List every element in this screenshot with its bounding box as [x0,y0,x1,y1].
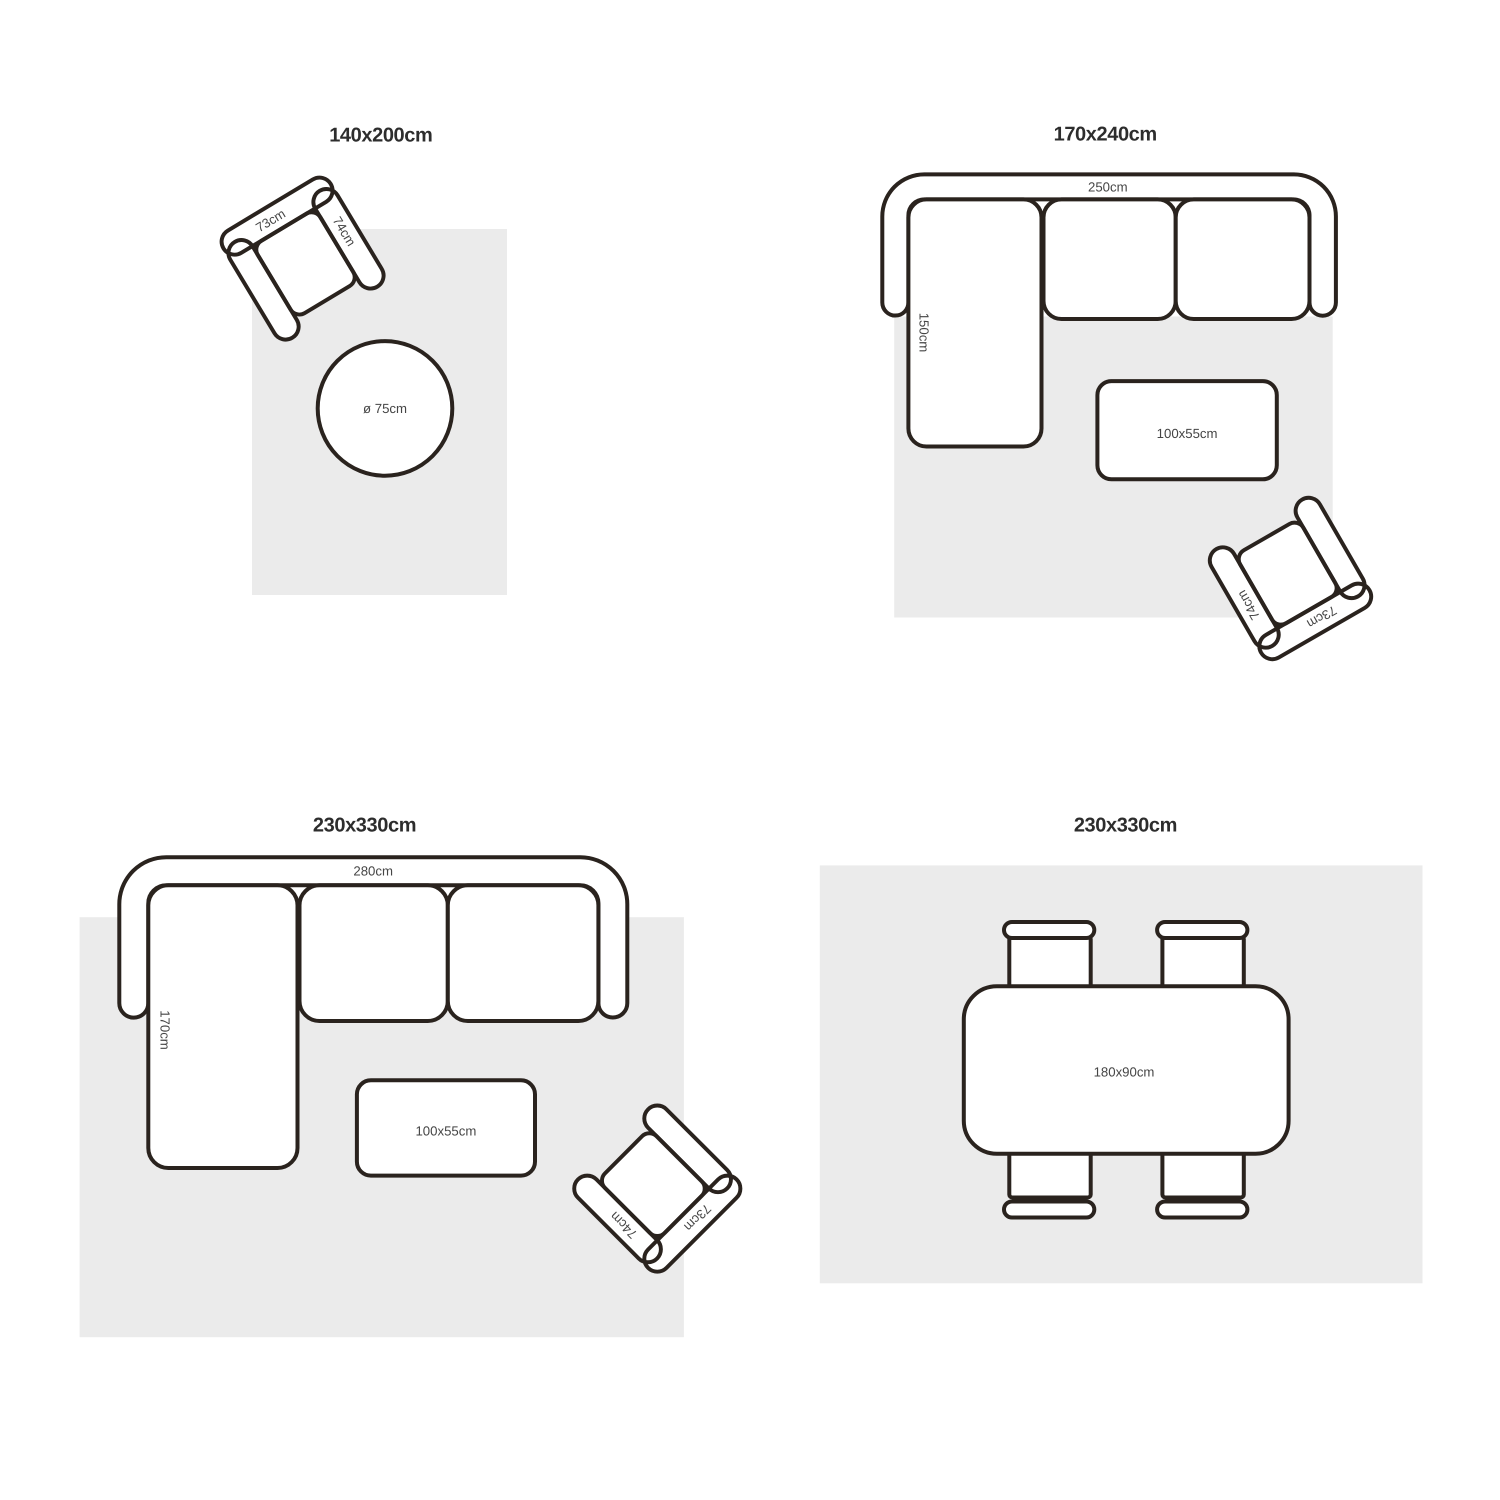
svg-text:230x330cm: 230x330cm [313,814,416,836]
svg-text:140x200cm: 140x200cm [329,124,432,146]
svg-text:230x330cm: 230x330cm [1074,815,1177,837]
svg-text:150cm: 150cm [917,313,932,353]
svg-text:100x55cm: 100x55cm [1157,426,1218,441]
svg-text:170x240cm: 170x240cm [1054,124,1157,146]
svg-text:180x90cm: 180x90cm [1094,1065,1155,1080]
svg-text:250cm: 250cm [1088,179,1128,194]
svg-text:280cm: 280cm [353,863,393,878]
svg-text:ø 75cm: ø 75cm [363,401,407,416]
svg-text:100x55cm: 100x55cm [415,1124,476,1139]
svg-text:170cm: 170cm [158,1010,173,1050]
